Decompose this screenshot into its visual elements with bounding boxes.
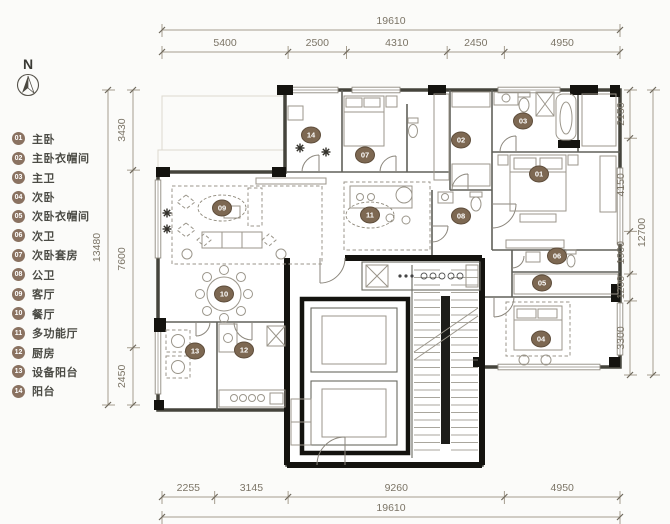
- svg-text:05: 05: [538, 279, 546, 288]
- legend-item-10: 10餐厅: [12, 304, 90, 323]
- dim-value: 4950: [551, 482, 575, 494]
- legend-item-02: 02主卧衣帽间: [12, 148, 90, 167]
- dim-value: 2255: [177, 482, 201, 494]
- svg-text:10: 10: [220, 290, 228, 299]
- legend-item-04: 04次卧: [12, 187, 90, 206]
- compass-needle-light: [28, 76, 34, 93]
- legend-number-badge: 01: [12, 132, 25, 145]
- legend-room-label: 主卧: [32, 131, 55, 147]
- svg-text:01: 01: [535, 170, 543, 179]
- legend-room-label: 厨房: [32, 345, 55, 361]
- dim-value: 4310: [385, 37, 409, 49]
- legend-number-badge: 06: [12, 229, 25, 242]
- dim-value: 5400: [213, 37, 237, 49]
- legend-number-badge: 03: [12, 171, 25, 184]
- dim-total: 19610: [376, 15, 405, 27]
- dim-value: 2500: [306, 37, 330, 49]
- legend-number-badge: 14: [12, 385, 25, 398]
- legend-item-12: 12厨房: [12, 343, 90, 362]
- legend-room-label: 阳台: [32, 383, 55, 399]
- dim-total: 12700: [636, 218, 648, 247]
- legend-number-badge: 02: [12, 152, 25, 165]
- legend-item-07: 07次卧套房: [12, 246, 90, 265]
- room-bubble-12: 12: [235, 342, 254, 358]
- plant-icon: [163, 209, 172, 218]
- legend-room-label: 设备阳台: [32, 364, 78, 380]
- room-bubble-01: 01: [530, 166, 549, 182]
- legend-number-badge: 07: [12, 249, 25, 262]
- legend-room-label: 次卧套房: [32, 247, 78, 263]
- room-bubble-04: 04: [532, 331, 551, 347]
- svg-text:03: 03: [519, 117, 527, 126]
- dim-value: 2150: [615, 102, 627, 126]
- elevator-shaft: [302, 299, 408, 453]
- room-bubble-06: 06: [548, 248, 567, 264]
- legend-room-label: 主卫: [32, 170, 55, 186]
- legend-room-label: 次卧衣帽间: [32, 208, 90, 224]
- dim-value: 3430: [116, 118, 128, 142]
- plant-icon: [163, 225, 172, 234]
- room-bubble-14: 14: [302, 127, 321, 143]
- legend-room-label: 餐厅: [32, 306, 55, 322]
- legend-item-03: 03主卫: [12, 168, 90, 187]
- dim-left: 34307600245013480: [91, 87, 140, 408]
- north-indicator: N: [18, 56, 39, 96]
- dim-value: 4950: [551, 37, 575, 49]
- dim-value: 4150: [615, 173, 627, 197]
- dim-total: 19610: [376, 502, 405, 514]
- legend-number-badge: 13: [12, 365, 25, 378]
- legend-item-01: 01主卧: [12, 129, 90, 148]
- room-bubble-02: 02: [452, 132, 471, 148]
- legend-room-label: 主卧衣帽间: [32, 150, 90, 166]
- dim-bottom: 225531459260495019610: [159, 482, 623, 524]
- svg-text:14: 14: [307, 131, 316, 140]
- room-bubble-10: 10: [215, 286, 234, 302]
- legend-number-badge: 09: [12, 288, 25, 301]
- legend-item-08: 08公卫: [12, 265, 90, 284]
- svg-text:02: 02: [457, 136, 465, 145]
- svg-text:06: 06: [553, 252, 561, 261]
- dim-value: 2450: [116, 365, 128, 389]
- room-bubble-03: 03: [514, 113, 533, 129]
- legend-item-09: 09客厅: [12, 285, 90, 304]
- legend-number-badge: 05: [12, 210, 25, 223]
- svg-text:07: 07: [361, 151, 369, 160]
- legend-number-badge: 04: [12, 191, 25, 204]
- dim-value: 7600: [116, 247, 128, 271]
- dim-value: 9260: [385, 482, 409, 494]
- dim-top: 5400250043102450495019610: [159, 15, 623, 59]
- plant-icon: [296, 144, 305, 153]
- neighbor-edge-line: [158, 96, 285, 172]
- dim-value: 3300: [615, 326, 627, 350]
- legend-item-13: 13设备阳台: [12, 362, 90, 381]
- svg-text:13: 13: [191, 347, 199, 356]
- dim-value: 1900: [615, 241, 627, 265]
- legend-item-14: 14阳台: [12, 382, 90, 401]
- legend-room-label: 公卫: [32, 267, 55, 283]
- floorplan-drawing: 5400250043102450495019610225531459260495…: [0, 0, 670, 524]
- legend-room-label: 次卫: [32, 228, 55, 244]
- legend-room-label: 次卧: [32, 189, 55, 205]
- room-bubble-05: 05: [533, 275, 552, 291]
- compass-needle-dark: [22, 76, 28, 93]
- legend-item-06: 06次卫: [12, 226, 90, 245]
- legend-room-label: 多功能厅: [32, 325, 78, 341]
- svg-text:09: 09: [218, 204, 226, 213]
- svg-text:11: 11: [366, 211, 374, 220]
- north-label: N: [23, 56, 33, 72]
- legend-number-badge: 10: [12, 307, 25, 320]
- legend-item-05: 05次卧衣帽间: [12, 207, 90, 226]
- legend-room-label: 客厅: [32, 286, 55, 302]
- room-bubble-08: 08: [452, 208, 471, 224]
- dim-total: 13480: [91, 233, 103, 262]
- dim-value: 2450: [464, 37, 488, 49]
- legend-number-badge: 08: [12, 268, 25, 281]
- legend-number-badge: 11: [12, 327, 25, 340]
- floorplan-page: 5400250043102450495019610225531459260495…: [0, 0, 670, 524]
- svg-text:08: 08: [457, 212, 465, 221]
- dim-value: 3145: [240, 482, 264, 494]
- dim-value: 1200: [615, 276, 627, 300]
- room-bubble-07: 07: [356, 147, 375, 163]
- room-bubble-13: 13: [186, 343, 205, 359]
- plant-icon: [322, 148, 331, 157]
- svg-text:12: 12: [240, 346, 248, 355]
- legend-item-11: 11多功能厅: [12, 323, 90, 342]
- svg-text:04: 04: [537, 335, 546, 344]
- room-legend: 01主卧02主卧衣帽间03主卫04次卧05次卧衣帽间06次卫07次卧套房08公卫…: [12, 129, 90, 401]
- legend-number-badge: 12: [12, 346, 25, 359]
- stair-stringer: [441, 296, 450, 444]
